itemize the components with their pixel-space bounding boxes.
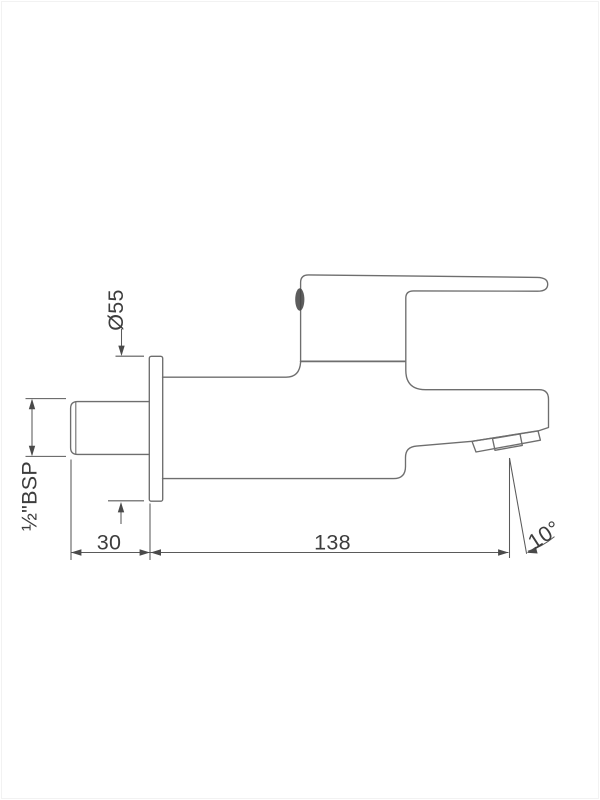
inlet-thread-pipe	[71, 402, 150, 455]
arrowhead-left	[71, 549, 81, 555]
dim-wall-projection: 30	[71, 460, 150, 561]
handle-indicator-dot	[295, 288, 304, 310]
dim-spout-angle: 10°	[510, 458, 565, 558]
arrowhead-up	[29, 399, 35, 409]
label-flange-diameter: Ø55	[104, 289, 128, 331]
wall-flange	[149, 356, 162, 501]
label-spout-angle: 10°	[524, 516, 565, 554]
technical-drawing-faucet-side-view: Ø55 ½"BSP 30 138	[0, 0, 600, 800]
angle-slant-line	[510, 458, 527, 554]
label-body-length: 138	[314, 531, 351, 555]
dim-flange-diameter: Ø55	[104, 289, 144, 524]
arrowhead-right	[498, 549, 508, 555]
dim-body-length: 138	[150, 531, 509, 556]
label-wall-projection: 30	[97, 531, 122, 555]
arrowhead-up	[118, 502, 124, 512]
arrowhead-left	[151, 549, 161, 555]
arrowhead-right	[140, 549, 150, 555]
arrowhead-down	[29, 446, 35, 456]
label-inlet-thread: ½"BSP	[18, 461, 42, 531]
arrowhead-down	[118, 346, 124, 356]
drawing-canvas: Ø55 ½"BSP 30 138	[0, 0, 600, 800]
faucet-body-and-lever	[163, 275, 549, 479]
faucet-outline	[71, 275, 549, 501]
dim-inlet-thread: ½"BSP	[18, 399, 67, 531]
